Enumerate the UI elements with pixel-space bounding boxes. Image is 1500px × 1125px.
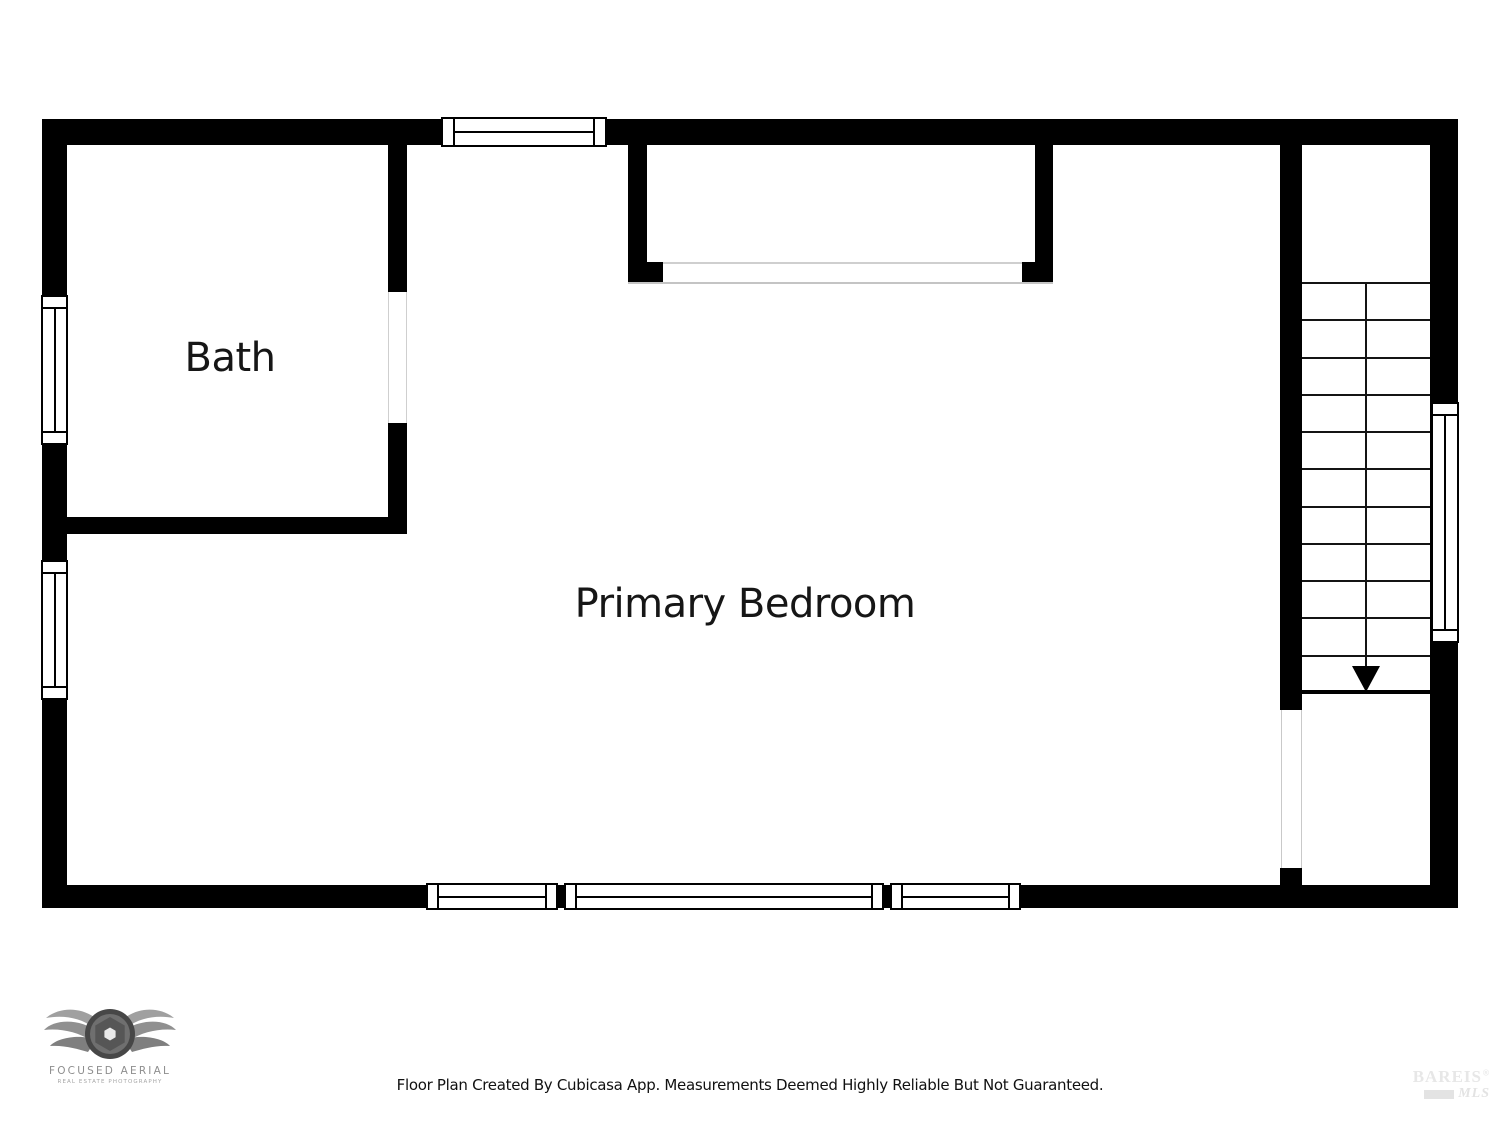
window-bedroom-left [41, 560, 68, 700]
window-top [441, 117, 607, 147]
staircase [1302, 282, 1430, 692]
room-label-primary-bedroom: Primary Bedroom [575, 581, 916, 627]
closet-opening-line-lower [628, 282, 1053, 284]
wall-stairs-left-stub [1280, 868, 1302, 885]
wall-stairs-left [1280, 145, 1302, 710]
logo-emblem-icon [42, 1002, 178, 1064]
closet-jamb-left [628, 145, 647, 282]
window-bottom-2 [564, 883, 884, 910]
bath-door-opening [388, 292, 407, 423]
footer-disclaimer: Floor Plan Created By Cubicasa App. Meas… [0, 1076, 1500, 1094]
watermark-bar [1424, 1090, 1454, 1099]
window-bottom-1 [426, 883, 558, 910]
floorplan: Bath Primary Bedroom [0, 0, 1500, 1125]
wall-exterior-left [42, 119, 67, 908]
logo: FOCUSED AERIAL REAL ESTATE PHOTOGRAPHY [42, 1002, 178, 1085]
watermark-name-row: BAREIS® [1413, 1068, 1490, 1086]
window-bath-left [41, 295, 68, 445]
stairs-down-arrow-icon [1352, 666, 1380, 692]
closet-jamb-right-foot [1022, 262, 1035, 282]
window-stairs-right [1431, 402, 1459, 643]
wall-bath-bottom [42, 517, 407, 534]
logo-tagline: REAL ESTATE PHOTOGRAPHY [42, 1079, 178, 1085]
watermark-mls: MLS [1458, 1087, 1490, 1102]
closet-jamb-left-foot [647, 262, 663, 282]
stair-center-line [1365, 282, 1367, 692]
window-bottom-3 [890, 883, 1021, 910]
stair-bottom-edge [1302, 690, 1430, 694]
logo-name: FOCUSED AERIAL [42, 1065, 178, 1077]
closet-opening-line-upper [663, 262, 1022, 264]
registered-mark-icon: ® [1482, 1069, 1490, 1078]
closet-jamb-right [1035, 145, 1053, 282]
room-label-bath: Bath [185, 335, 276, 381]
watermark-name: BAREIS [1413, 1067, 1482, 1086]
wall-exterior-top [42, 119, 1458, 145]
stair-landing-outline [1281, 710, 1302, 868]
watermark-mls-row: MLS [1413, 1087, 1490, 1102]
watermark: BAREIS® MLS [1413, 1068, 1490, 1102]
